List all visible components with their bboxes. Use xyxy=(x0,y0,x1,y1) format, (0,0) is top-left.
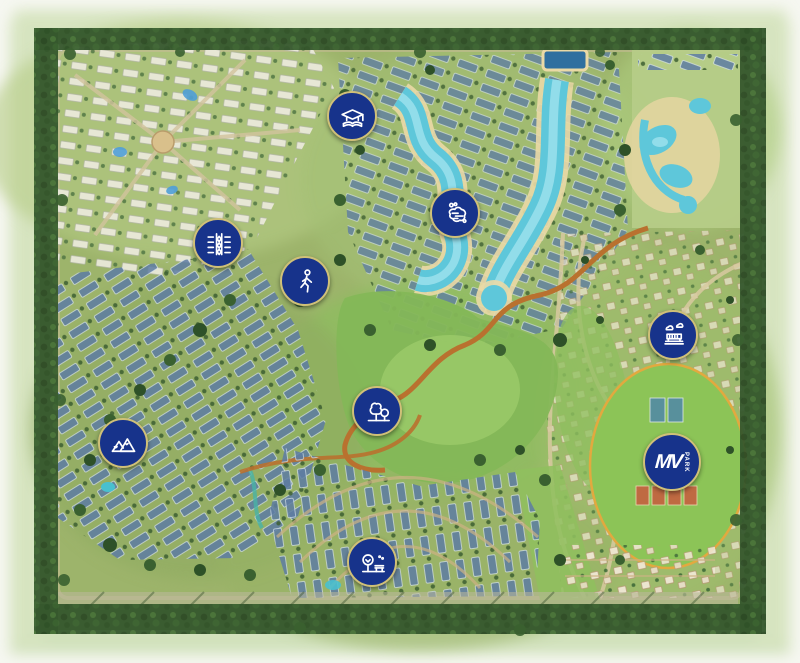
pavilion-clouds-icon xyxy=(658,320,689,351)
tree-bench-icon xyxy=(357,547,388,578)
marker-central-park[interactable] xyxy=(352,386,402,436)
marker-hills-landscape[interactable] xyxy=(98,418,148,468)
marker-mv-park[interactable]: MV PARK xyxy=(643,433,701,491)
trees-icon xyxy=(362,396,393,427)
graduation-cap-icon xyxy=(337,101,368,132)
mv-park-logo: MV xyxy=(654,452,681,472)
marker-tree-lined-boulevard[interactable] xyxy=(193,218,243,268)
masterplan-stage: MV PARK xyxy=(0,0,800,663)
marker-education-hub[interactable] xyxy=(327,91,377,141)
mv-park-logo-sub: PARK xyxy=(683,452,689,473)
marker-pocket-park[interactable] xyxy=(347,537,397,587)
marker-crystal-lagoon[interactable] xyxy=(430,188,480,238)
marker-open-air-pavilion[interactable] xyxy=(648,310,698,360)
marker-walking-trails[interactable] xyxy=(280,256,330,306)
boulevard-median-icon xyxy=(203,228,234,259)
pedestrian-icon xyxy=(290,266,321,297)
mountains-icon xyxy=(108,428,139,459)
lagoon-pool-icon xyxy=(440,198,471,229)
